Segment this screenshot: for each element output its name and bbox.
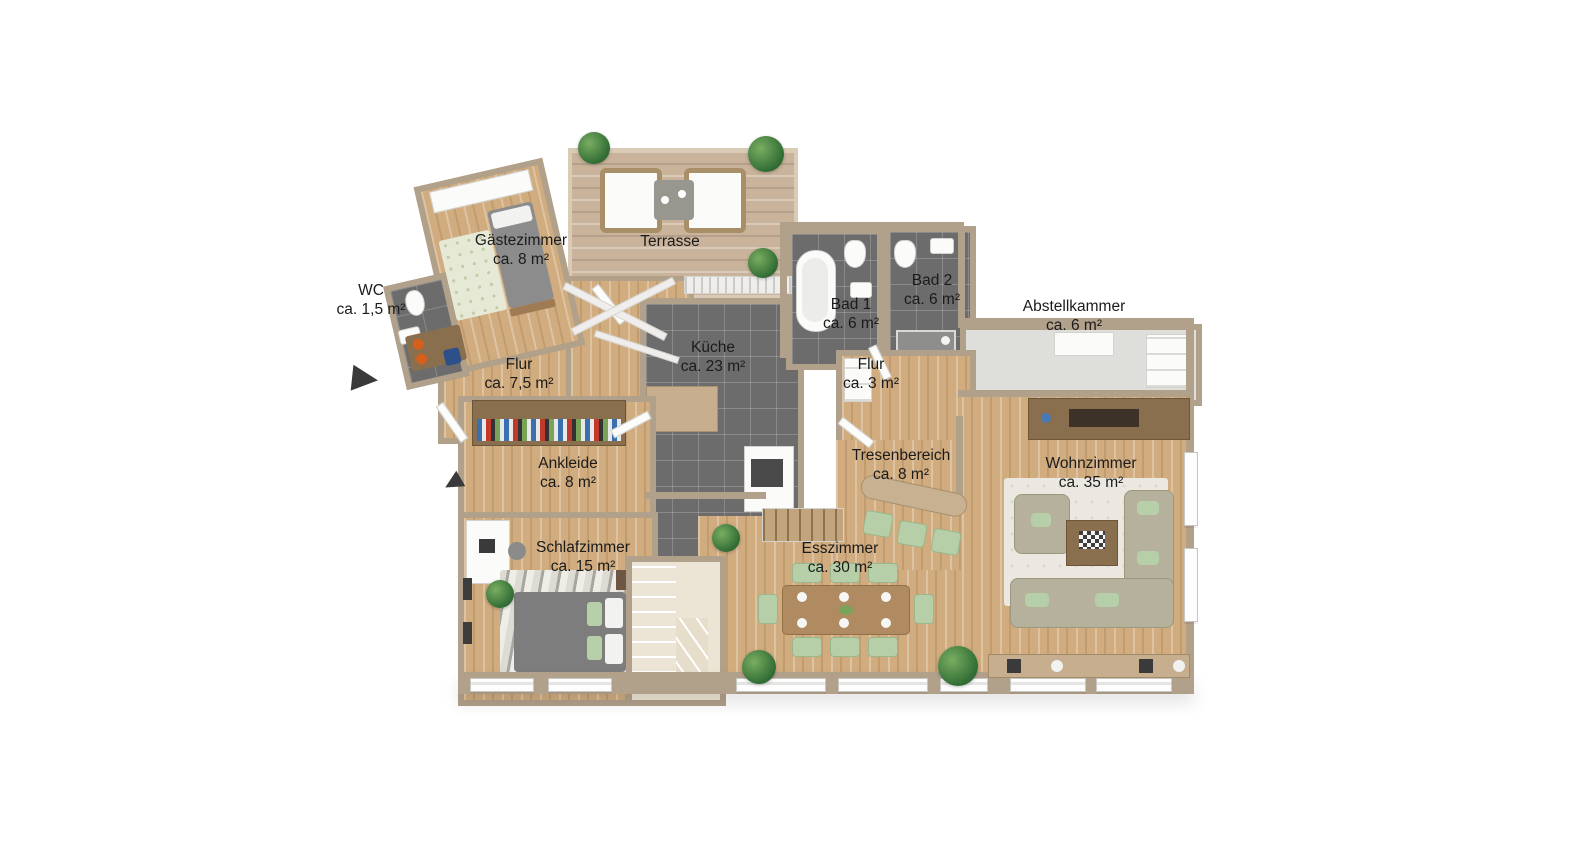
window (1096, 678, 1172, 692)
tv-sideboard (1028, 398, 1190, 440)
room-label-esszimmer: Esszimmer ca. 30 m² (802, 539, 879, 577)
sink (930, 238, 954, 254)
storage-cabinet (1054, 332, 1114, 356)
pillow (605, 598, 623, 628)
wall (786, 222, 964, 230)
room-area: ca. 6 m² (904, 290, 960, 309)
decor-pot (412, 338, 425, 351)
wine-shelf (762, 508, 844, 542)
cup (678, 190, 686, 198)
hanging-clothes (477, 419, 621, 441)
plate (797, 592, 807, 602)
pillow (587, 636, 602, 660)
oven (751, 459, 783, 487)
pillow (605, 634, 623, 664)
wall (877, 228, 884, 352)
plate (839, 618, 849, 628)
speaker (1139, 659, 1153, 673)
entrance-arrow-icon (351, 365, 380, 394)
room-name: Esszimmer (802, 539, 879, 558)
room-label-schlafzimmer: Schlafzimmer ca. 15 m² (536, 538, 630, 576)
decor-pot (415, 352, 428, 365)
plant-icon (748, 136, 784, 172)
room-name: Wohnzimmer (1045, 454, 1136, 473)
turntable (1051, 660, 1063, 672)
pillow (587, 602, 602, 626)
window (548, 678, 612, 692)
bed-frame (509, 299, 556, 317)
sofa-bottom-section (1010, 578, 1174, 628)
plate (839, 592, 849, 602)
wall-art (463, 578, 472, 600)
room-name: Bad 1 (823, 295, 879, 314)
dining-chair (830, 637, 860, 657)
kitchen-island (646, 386, 718, 432)
room-area: ca. 8 m² (852, 465, 951, 484)
kitchen-appliance-block (744, 446, 794, 512)
room-name: Flur (843, 355, 899, 374)
bar-stool (862, 510, 894, 538)
media-bench (988, 654, 1190, 678)
room-label-terrasse: Terrasse (640, 232, 699, 251)
room-name: Ankleide (538, 454, 597, 473)
room-name: Gästezimmer (475, 231, 567, 250)
room-label-bad1: Bad 1 ca. 6 m² (823, 295, 879, 333)
plant-icon (712, 524, 740, 552)
cup (661, 196, 669, 204)
bar-stool (896, 520, 928, 548)
room-name: WC (337, 281, 406, 300)
terrace-table (654, 180, 694, 220)
desk-chair (508, 542, 526, 560)
speaker (1007, 659, 1021, 673)
window (1184, 548, 1198, 622)
room-name: Schlafzimmer (536, 538, 630, 557)
bar-stool (930, 528, 962, 556)
plant-icon (938, 646, 978, 686)
room-name: Flur (485, 355, 554, 374)
dining-chair (792, 637, 822, 657)
laptop (479, 539, 495, 553)
dining-chair (914, 594, 934, 624)
shower-head (941, 336, 950, 345)
wall (958, 390, 1194, 397)
pillow (1031, 513, 1051, 527)
pillow (1025, 593, 1049, 607)
plate (881, 618, 891, 628)
room-name: Abstellkammer (1023, 297, 1126, 316)
pillow (1095, 593, 1119, 607)
room-area: ca. 30 m² (802, 558, 879, 577)
room-name: Terrasse (640, 232, 699, 251)
room-area: ca. 6 m² (1023, 316, 1126, 335)
room-area: ca. 23 m² (681, 357, 746, 376)
pillow (1137, 551, 1159, 565)
room-label-wohnzimmer: Wohnzimmer ca. 35 m² (1045, 454, 1136, 492)
room-label-ankleide: Ankleide ca. 8 m² (538, 454, 597, 492)
dining-chair (758, 594, 778, 624)
wall (780, 222, 787, 358)
room-label-flur-klein: Flur ca. 3 m² (843, 355, 899, 393)
room-area: ca. 35 m² (1045, 473, 1136, 492)
balcony-railing (684, 276, 792, 294)
dining-table (782, 585, 910, 635)
room-area: ca. 15 m² (536, 557, 630, 576)
plate (881, 592, 891, 602)
wall-art (463, 622, 472, 644)
room-area: ca. 8 m² (475, 250, 567, 269)
table-decor (839, 605, 853, 615)
room-label-tresenbereich: Tresenbereich ca. 8 m² (852, 446, 951, 484)
room-area: ca. 1,5 m² (337, 300, 406, 319)
wardrobe (472, 400, 626, 446)
plate (797, 618, 807, 628)
armchair (1014, 494, 1070, 554)
room-label-kueche: Küche ca. 23 m² (681, 338, 746, 376)
room-area: ca. 8 m² (538, 473, 597, 492)
chess-board (1079, 531, 1105, 549)
room-label-wc: WC ca. 1,5 m² (337, 281, 406, 319)
coffee-table (1066, 520, 1118, 566)
terrace-chair (600, 168, 662, 233)
window (1184, 452, 1198, 526)
tv (1069, 409, 1139, 427)
window (1010, 678, 1086, 692)
room-label-bad2: Bad 2 ca. 6 m² (904, 271, 960, 309)
turntable (1173, 660, 1185, 672)
room-name: Küche (681, 338, 746, 357)
plant-icon (742, 650, 776, 684)
window (838, 678, 928, 692)
room-name: Bad 2 (904, 271, 960, 290)
plant-icon (486, 580, 514, 608)
room-label-gaestezimmer: Gästezimmer ca. 8 m² (475, 231, 567, 269)
floor-plan-canvas: Gästezimmer ca. 8 m² Terrasse WC ca. 1,5… (0, 0, 1586, 853)
pillow (1137, 501, 1159, 515)
decor (1041, 413, 1051, 423)
room-name: Tresenbereich (852, 446, 951, 465)
room-label-abstellkammer: Abstellkammer ca. 6 m² (1023, 297, 1126, 335)
toilet (894, 240, 916, 268)
plant-icon (578, 132, 610, 164)
dining-chair (868, 637, 898, 657)
room-area: ca. 3 m² (843, 374, 899, 393)
room-area: ca. 6 m² (823, 314, 879, 333)
plant-icon (748, 248, 778, 278)
window (470, 678, 534, 692)
toilet (844, 240, 866, 268)
pillow (490, 205, 533, 230)
wall (646, 492, 766, 499)
double-bed (514, 592, 626, 672)
stair-steps (632, 562, 676, 688)
room-label-flur-gross: Flur ca. 7,5 m² (485, 355, 554, 393)
room-area: ca. 7,5 m² (485, 374, 554, 393)
toilet (403, 288, 427, 318)
